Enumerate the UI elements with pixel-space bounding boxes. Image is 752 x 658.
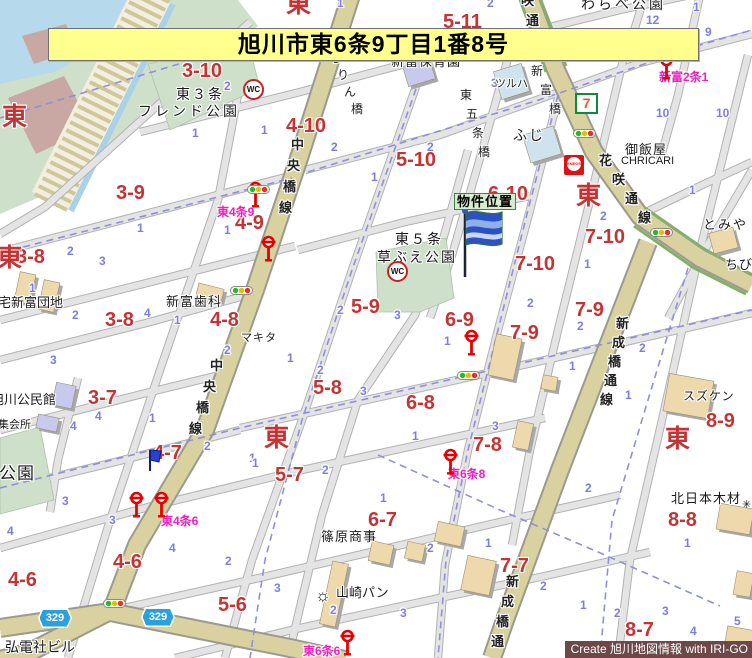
map-viewport[interactable]: 3-104-105-105-116-107-107-103-94-93-83-8… [0,0,752,658]
map-credit: Create 旭川地図情報 with IRI-GO [565,641,752,658]
route-329-badge: 329 [38,608,72,628]
property-flag-icon [461,207,503,279]
map-base-layer [0,0,752,658]
property-location-label: 物件位置 [454,193,516,210]
address-banner: 旭川市東6条9丁目1番8号 [48,28,699,61]
route-329-badge: 329 [141,607,175,627]
